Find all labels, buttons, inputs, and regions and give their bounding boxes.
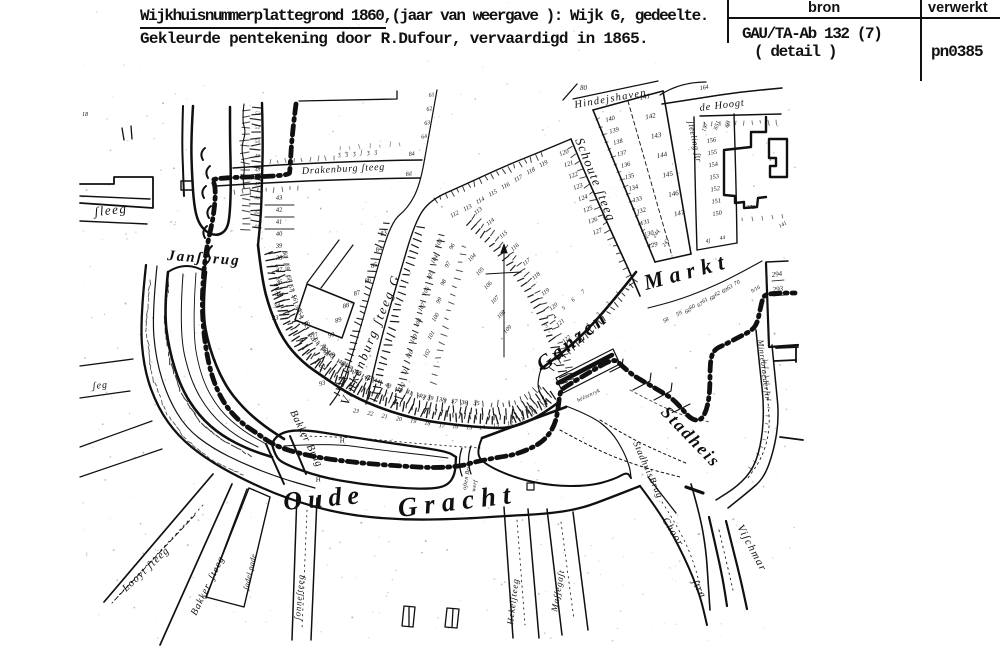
svg-text:19: 19	[410, 418, 417, 425]
svg-text:16: 16	[452, 424, 458, 430]
svg-text:17: 17	[438, 423, 446, 430]
svg-text:113: 113	[473, 206, 483, 216]
svg-text:42: 42	[276, 206, 284, 214]
svg-text:Stadheis: Stadheis	[657, 402, 725, 471]
svg-text:80: 80	[580, 84, 588, 92]
svg-text:51: 51	[255, 125, 261, 131]
svg-text:156: 156	[706, 136, 717, 145]
svg-text:101: 101	[427, 330, 437, 341]
svg-text:14: 14	[479, 424, 486, 432]
svg-text:37: 37	[275, 266, 284, 274]
svg-text:22: 22	[367, 411, 374, 418]
svg-text:Drakenburg ʃteeg: Drakenburg ʃteeg	[301, 162, 386, 177]
svg-text:115: 115	[487, 188, 498, 198]
svg-text:84: 84	[408, 150, 415, 158]
svg-text:Choor: Choor	[659, 516, 685, 549]
svg-text:50: 50	[255, 139, 261, 145]
svg-text:ʃleeg: ʃleeg	[92, 201, 128, 220]
svg-text:124: 124	[577, 193, 589, 203]
svg-text:39: 39	[275, 242, 284, 250]
svg-text:119: 119	[541, 287, 551, 297]
svg-text:164: 164	[699, 84, 709, 92]
svg-text:Maʃʃegaʃt: Maʃʃegaʃt	[549, 569, 566, 614]
svg-text:125: 125	[582, 204, 594, 214]
svg-text:40: 40	[417, 392, 426, 401]
svg-text:37: 37	[450, 398, 459, 406]
svg-text:112: 112	[398, 382, 407, 392]
svg-text:118: 118	[525, 166, 537, 177]
svg-text:48: 48	[255, 167, 261, 174]
svg-text:18: 18	[82, 112, 88, 118]
svg-text:12: 12	[507, 421, 514, 428]
svg-text:151: 151	[711, 197, 722, 206]
svg-text:61: 61	[428, 92, 435, 99]
svg-text:110: 110	[406, 350, 415, 360]
svg-text:62: 62	[426, 106, 433, 113]
svg-text:108: 108	[414, 318, 424, 329]
svg-text:63: 63	[424, 120, 431, 127]
svg-text:ʃtra: ʃtra	[688, 576, 708, 600]
svg-text:87: 87	[353, 289, 362, 298]
svg-text:129: 129	[647, 241, 659, 250]
svg-text:62: 62	[714, 290, 722, 298]
svg-text:Janʃbrug: Janʃbrug	[166, 248, 241, 269]
svg-text:104: 104	[466, 252, 477, 263]
svg-text:109: 109	[410, 333, 420, 344]
svg-text:157: 157	[701, 121, 710, 132]
svg-text:111: 111	[402, 366, 411, 376]
svg-text:116: 116	[510, 243, 520, 253]
svg-text:153: 153	[709, 173, 720, 182]
svg-text:Oude: Oude	[282, 480, 366, 516]
svg-text:112: 112	[449, 209, 460, 219]
svg-text:49: 49	[255, 152, 261, 159]
svg-text:139: 139	[609, 126, 621, 135]
svg-text:8d: 8d	[405, 171, 413, 178]
svg-text:107: 107	[490, 294, 501, 305]
svg-text:119: 119	[538, 159, 549, 169]
svg-text:99: 99	[436, 297, 444, 305]
svg-text:97: 97	[444, 260, 453, 269]
svg-text:116: 116	[500, 180, 512, 191]
svg-text:293: 293	[772, 285, 784, 294]
svg-text:108: 108	[496, 310, 507, 321]
svg-text:15: 15	[466, 425, 472, 431]
svg-text:Bakker. ʃteeg: Bakker. ʃteeg	[189, 554, 227, 617]
svg-text:21: 21	[381, 413, 388, 420]
svg-text:44: 44	[254, 223, 260, 230]
svg-text:120: 120	[558, 148, 570, 158]
svg-text:118: 118	[531, 271, 541, 281]
svg-text:52: 52	[255, 111, 261, 117]
svg-text:154: 154	[708, 161, 719, 170]
svg-text:144: 144	[656, 150, 668, 160]
svg-text:132: 132	[636, 206, 648, 215]
svg-text:145: 145	[662, 169, 674, 179]
svg-text:23: 23	[352, 408, 359, 415]
svg-text:63: 63	[726, 284, 734, 292]
svg-text:102: 102	[423, 348, 433, 359]
svg-text:93: 93	[318, 379, 327, 388]
svg-text:651: 651	[713, 120, 722, 131]
svg-text:141: 141	[778, 219, 789, 229]
svg-text:64: 64	[421, 133, 428, 141]
svg-text:120: 120	[549, 302, 560, 312]
svg-text:121: 121	[563, 159, 575, 169]
svg-text:105: 105	[426, 270, 436, 281]
svg-text:Viʃchmar: Viʃchmar	[734, 523, 769, 574]
svg-text:Hekelʃteeg: Hekelʃteeg	[505, 578, 521, 626]
svg-text:142: 142	[645, 111, 657, 121]
svg-text:105: 105	[475, 267, 486, 278]
svg-text:114: 114	[485, 217, 496, 228]
svg-text:45: 45	[254, 209, 260, 216]
svg-text:4ʃ: 4ʃ	[705, 237, 712, 245]
svg-text:122: 122	[568, 170, 580, 180]
svg-text:133: 133	[632, 195, 643, 204]
svg-text:ʃeg: ʃeg	[90, 379, 108, 392]
svg-text:20: 20	[395, 416, 402, 423]
svg-text:137: 137	[616, 149, 628, 158]
svg-text:140: 140	[605, 114, 617, 123]
svg-text:héézenryk: héézenryk	[576, 388, 601, 404]
svg-text:143: 143	[650, 131, 662, 141]
svg-text:100: 100	[431, 312, 441, 323]
svg-text:136: 136	[620, 160, 632, 169]
svg-text:4: 4	[552, 313, 559, 320]
svg-text:9/16: 9/16	[750, 285, 762, 295]
svg-text:294: 294	[771, 270, 783, 279]
svg-text:Schoute ʃteeg: Schoute ʃteeg	[572, 136, 619, 224]
svg-text:13: 13	[493, 423, 500, 430]
svg-text:59: 59	[675, 310, 683, 318]
svg-text:107: 107	[418, 301, 428, 313]
svg-text:275: 275	[746, 205, 755, 211]
svg-text:46: 46	[254, 195, 260, 202]
svg-text:150: 150	[712, 209, 723, 218]
svg-text:6: 6	[570, 297, 576, 304]
svg-text:43: 43	[276, 194, 284, 202]
svg-text:18: 18	[424, 421, 431, 428]
svg-text:58: 58	[662, 317, 670, 325]
svg-text:127: 127	[592, 227, 604, 237]
svg-text:44: 44	[719, 234, 726, 242]
svg-text:115: 115	[499, 230, 509, 240]
svg-text:88: 88	[342, 302, 351, 311]
svg-text:117: 117	[513, 173, 525, 184]
svg-text:141: 141	[639, 92, 651, 102]
svg-text:89: 89	[334, 316, 343, 325]
svg-text:138: 138	[613, 137, 625, 146]
svg-text:98: 98	[440, 279, 448, 287]
svg-text:Bakker Brug: Bakker Brug	[287, 408, 324, 469]
svg-text:41: 41	[276, 218, 283, 226]
svg-text:96: 96	[449, 243, 457, 251]
svg-text:5: 5	[561, 305, 567, 312]
svg-text:117: 117	[522, 257, 533, 268]
svg-text:60: 60	[689, 303, 697, 311]
svg-text:7: 7	[580, 288, 587, 295]
svg-text:106: 106	[483, 281, 494, 292]
svg-text:134: 134	[628, 183, 640, 192]
svg-text:40: 40	[276, 230, 284, 238]
svg-text:146: 146	[668, 189, 680, 199]
svg-text:131: 131	[640, 218, 651, 227]
svg-text:61: 61	[701, 297, 709, 305]
svg-text:114: 114	[475, 196, 486, 206]
svg-text:103: 103	[435, 238, 445, 249]
svg-text:123: 123	[572, 182, 584, 192]
svg-text:de Hoogt: de Hoogt	[699, 98, 745, 114]
svg-text:113: 113	[462, 203, 473, 213]
svg-text:126: 126	[587, 216, 599, 226]
svg-text:152: 152	[710, 185, 721, 194]
svg-text:155: 155	[707, 149, 718, 158]
svg-text:ʃadel pade: ʃadel pade	[241, 553, 258, 592]
svg-text:243: 243	[661, 237, 672, 248]
svg-text:ʒ ʒ ʒ ʃ ʒ ʒ: ʒ ʒ ʒ ʃ ʒ ʒ	[337, 148, 379, 158]
svg-text:70: 70	[733, 279, 741, 287]
